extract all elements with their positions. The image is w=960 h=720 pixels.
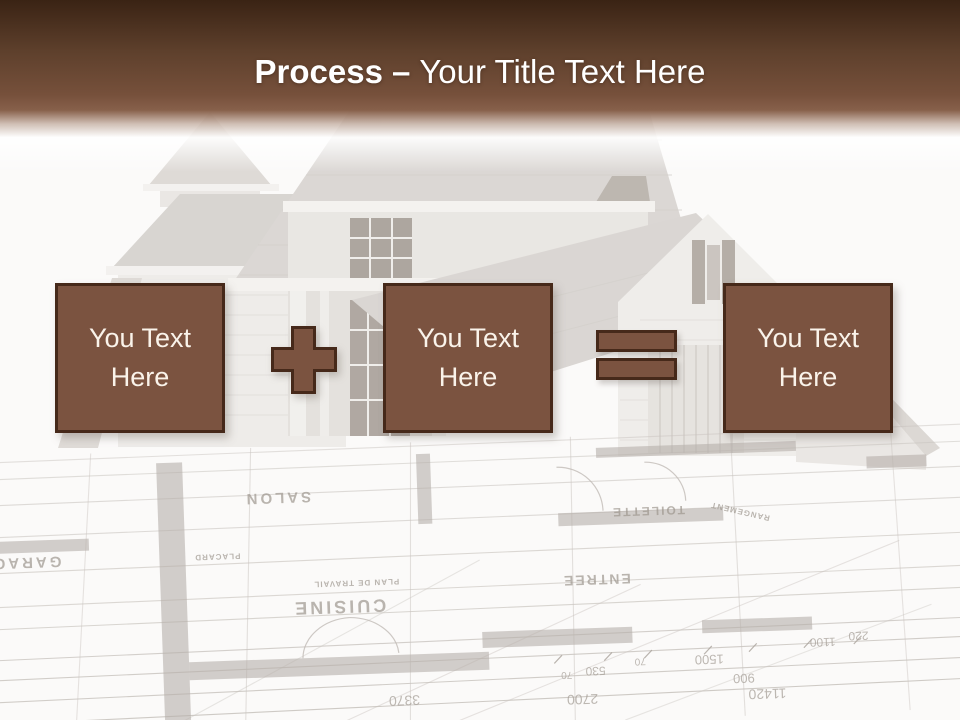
title-separator: –	[392, 53, 410, 90]
equals-bar-bottom	[596, 358, 677, 380]
blueprint: SALON CUISINE TOILETTE ENTREE GARAGE PLA…	[0, 423, 960, 720]
blueprint-dim: 220	[848, 628, 869, 643]
title-text: Your Title Text Here	[419, 53, 705, 90]
blueprint-dim: 1500	[695, 652, 724, 668]
process-box-2-label: You Text Here	[386, 319, 550, 397]
blueprint-label-toilette: TOILETTE	[611, 503, 685, 520]
process-box-1[interactable]: You Text Here	[55, 283, 225, 433]
slide-title[interactable]: Process–Your Title Text Here	[0, 52, 960, 92]
plus-icon	[271, 326, 337, 394]
blueprint-dim: 11420	[748, 685, 787, 702]
blueprint-label-placard: PLACARD	[194, 551, 240, 562]
blueprint-label-entree: ENTREE	[562, 571, 631, 589]
blueprint-dim: 3370	[388, 692, 420, 709]
title-keyword: Process	[255, 53, 383, 90]
slide: SALON CUISINE TOILETTE ENTREE GARAGE PLA…	[0, 0, 960, 720]
blueprint-label-plan-de-travail: PLAN DE TRAVAIL	[313, 577, 399, 589]
blueprint-dim: 70	[634, 655, 646, 666]
blueprint-label-garage: GARAGE	[0, 553, 62, 573]
blueprint-label-salon: SALON	[243, 488, 311, 507]
blueprint-dim: 70	[561, 669, 573, 680]
process-box-2[interactable]: You Text Here	[383, 283, 553, 433]
equals-icon	[596, 330, 677, 380]
blueprint-dim: 530	[585, 664, 606, 679]
blueprint-dim: 2700	[567, 691, 599, 708]
blueprint-dim: 1100	[809, 635, 836, 650]
blueprint-label-cuisine: CUISINE	[292, 595, 387, 618]
process-box-3[interactable]: You Text Here	[723, 283, 893, 433]
process-box-1-label: You Text Here	[58, 319, 222, 397]
blueprint-dim: 900	[733, 670, 755, 686]
equals-bar-top	[596, 330, 677, 352]
process-box-3-label: You Text Here	[726, 319, 890, 397]
